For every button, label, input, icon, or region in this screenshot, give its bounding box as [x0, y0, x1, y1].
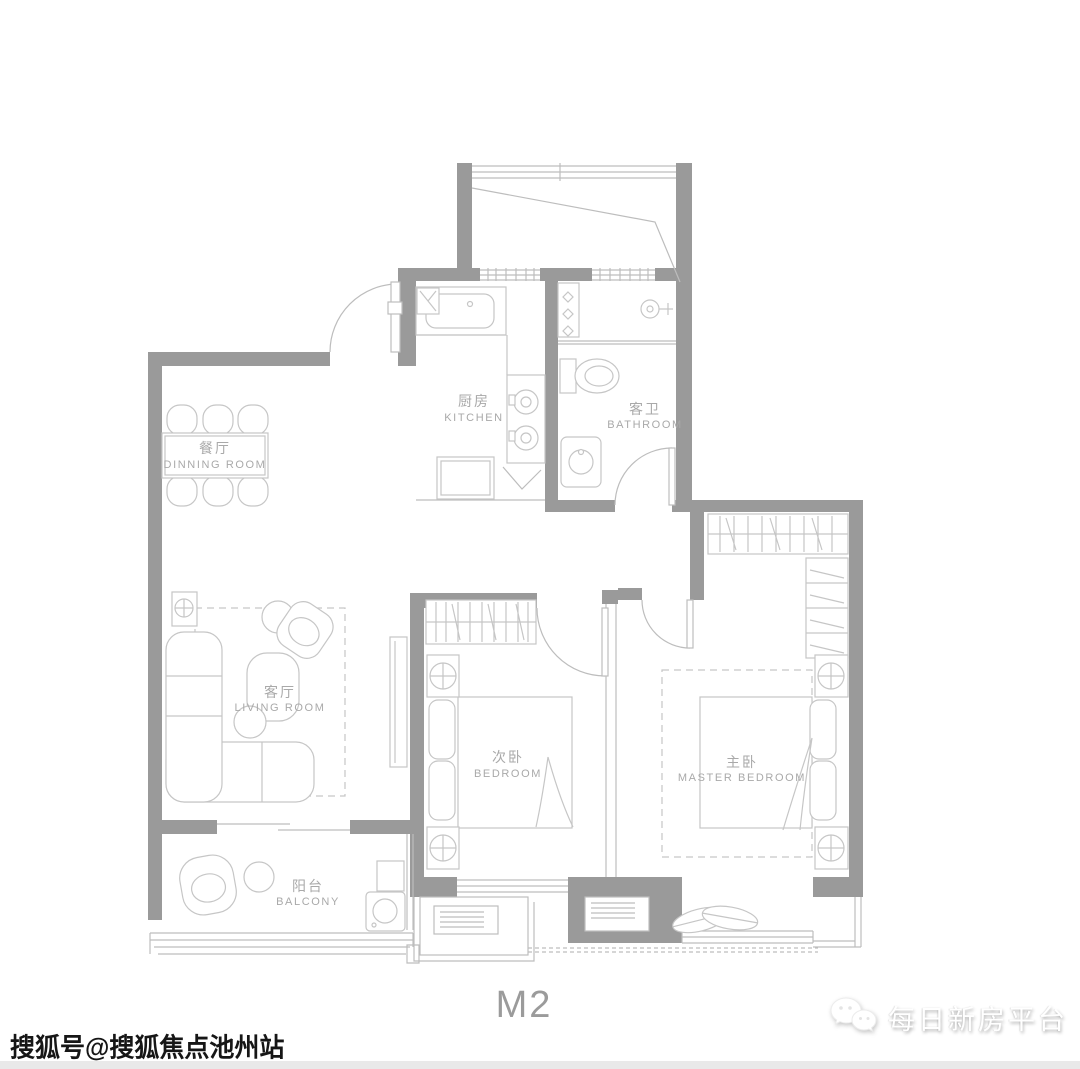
bathroom-label-en: BATHROOM	[607, 419, 683, 431]
living-label-en: LIVING ROOM	[235, 702, 326, 714]
sohu-watermark-text: 搜狐号@搜狐焦点池州站	[10, 1027, 284, 1065]
floor-plan-page: 餐厅 DINNING ROOM 厨房 KITCHEN 客卫 BATHROOM 客…	[0, 0, 1080, 1069]
furniture	[162, 283, 848, 937]
living-label-cn: 客厅	[264, 684, 296, 700]
bedroom2-door	[537, 608, 608, 676]
plan-code-label: M2	[424, 984, 624, 1027]
balcony-label-cn: 阳台	[292, 878, 324, 894]
balcony-furniture	[176, 852, 405, 931]
platform-diagonal-line	[472, 188, 680, 282]
dining-label-en: DINNING ROOM	[164, 459, 267, 471]
bedroom2-furniture	[426, 600, 573, 869]
bathroom-fixtures	[558, 283, 673, 487]
dining-label-cn: 餐厅	[199, 440, 231, 456]
platform-logo-text: 每日新房平台	[888, 998, 1068, 1037]
wechat-bubbles-icon	[828, 994, 882, 1040]
bathroom-label-cn: 客卫	[629, 401, 661, 417]
balcony-label-en: BALCONY	[276, 896, 340, 908]
platform-logo: 每日新房平台	[828, 994, 1068, 1040]
floor-plan-drawing: 餐厅 DINNING ROOM 厨房 KITCHEN 客卫 BATHROOM 客…	[0, 0, 1080, 1069]
master-label-en: MASTER BEDROOM	[678, 772, 806, 784]
kitchen-folding-door	[503, 467, 541, 489]
entry-door	[330, 282, 402, 352]
sofa-left-arm	[166, 632, 222, 802]
tv-console	[390, 637, 407, 767]
master-bedroom-door	[642, 600, 693, 648]
kitchen-label-cn: 厨房	[458, 393, 490, 409]
bedroom2-label-cn: 次卧	[492, 749, 524, 765]
windows-and-railings	[150, 163, 861, 963]
bottom-divider-strip	[0, 1061, 1080, 1069]
side-table	[244, 862, 274, 892]
kitchen-label-en: KITCHEN	[444, 412, 503, 424]
bathroom-door	[615, 448, 675, 505]
master-bedroom-furniture	[662, 514, 848, 869]
cabinet	[377, 861, 404, 891]
plant-decoration	[670, 902, 759, 937]
bedroom2-label-en: BEDROOM	[474, 768, 542, 780]
master-label-cn: 主卧	[726, 754, 758, 770]
